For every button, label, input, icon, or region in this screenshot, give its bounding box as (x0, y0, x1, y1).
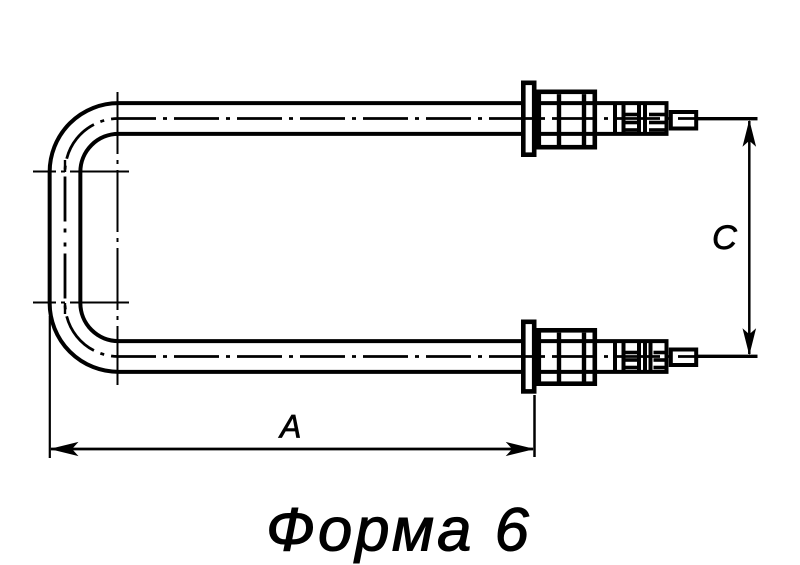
svg-text:A: A (278, 409, 301, 445)
svg-text:Форма 6: Форма 6 (266, 496, 532, 565)
svg-text:C: C (712, 219, 738, 257)
